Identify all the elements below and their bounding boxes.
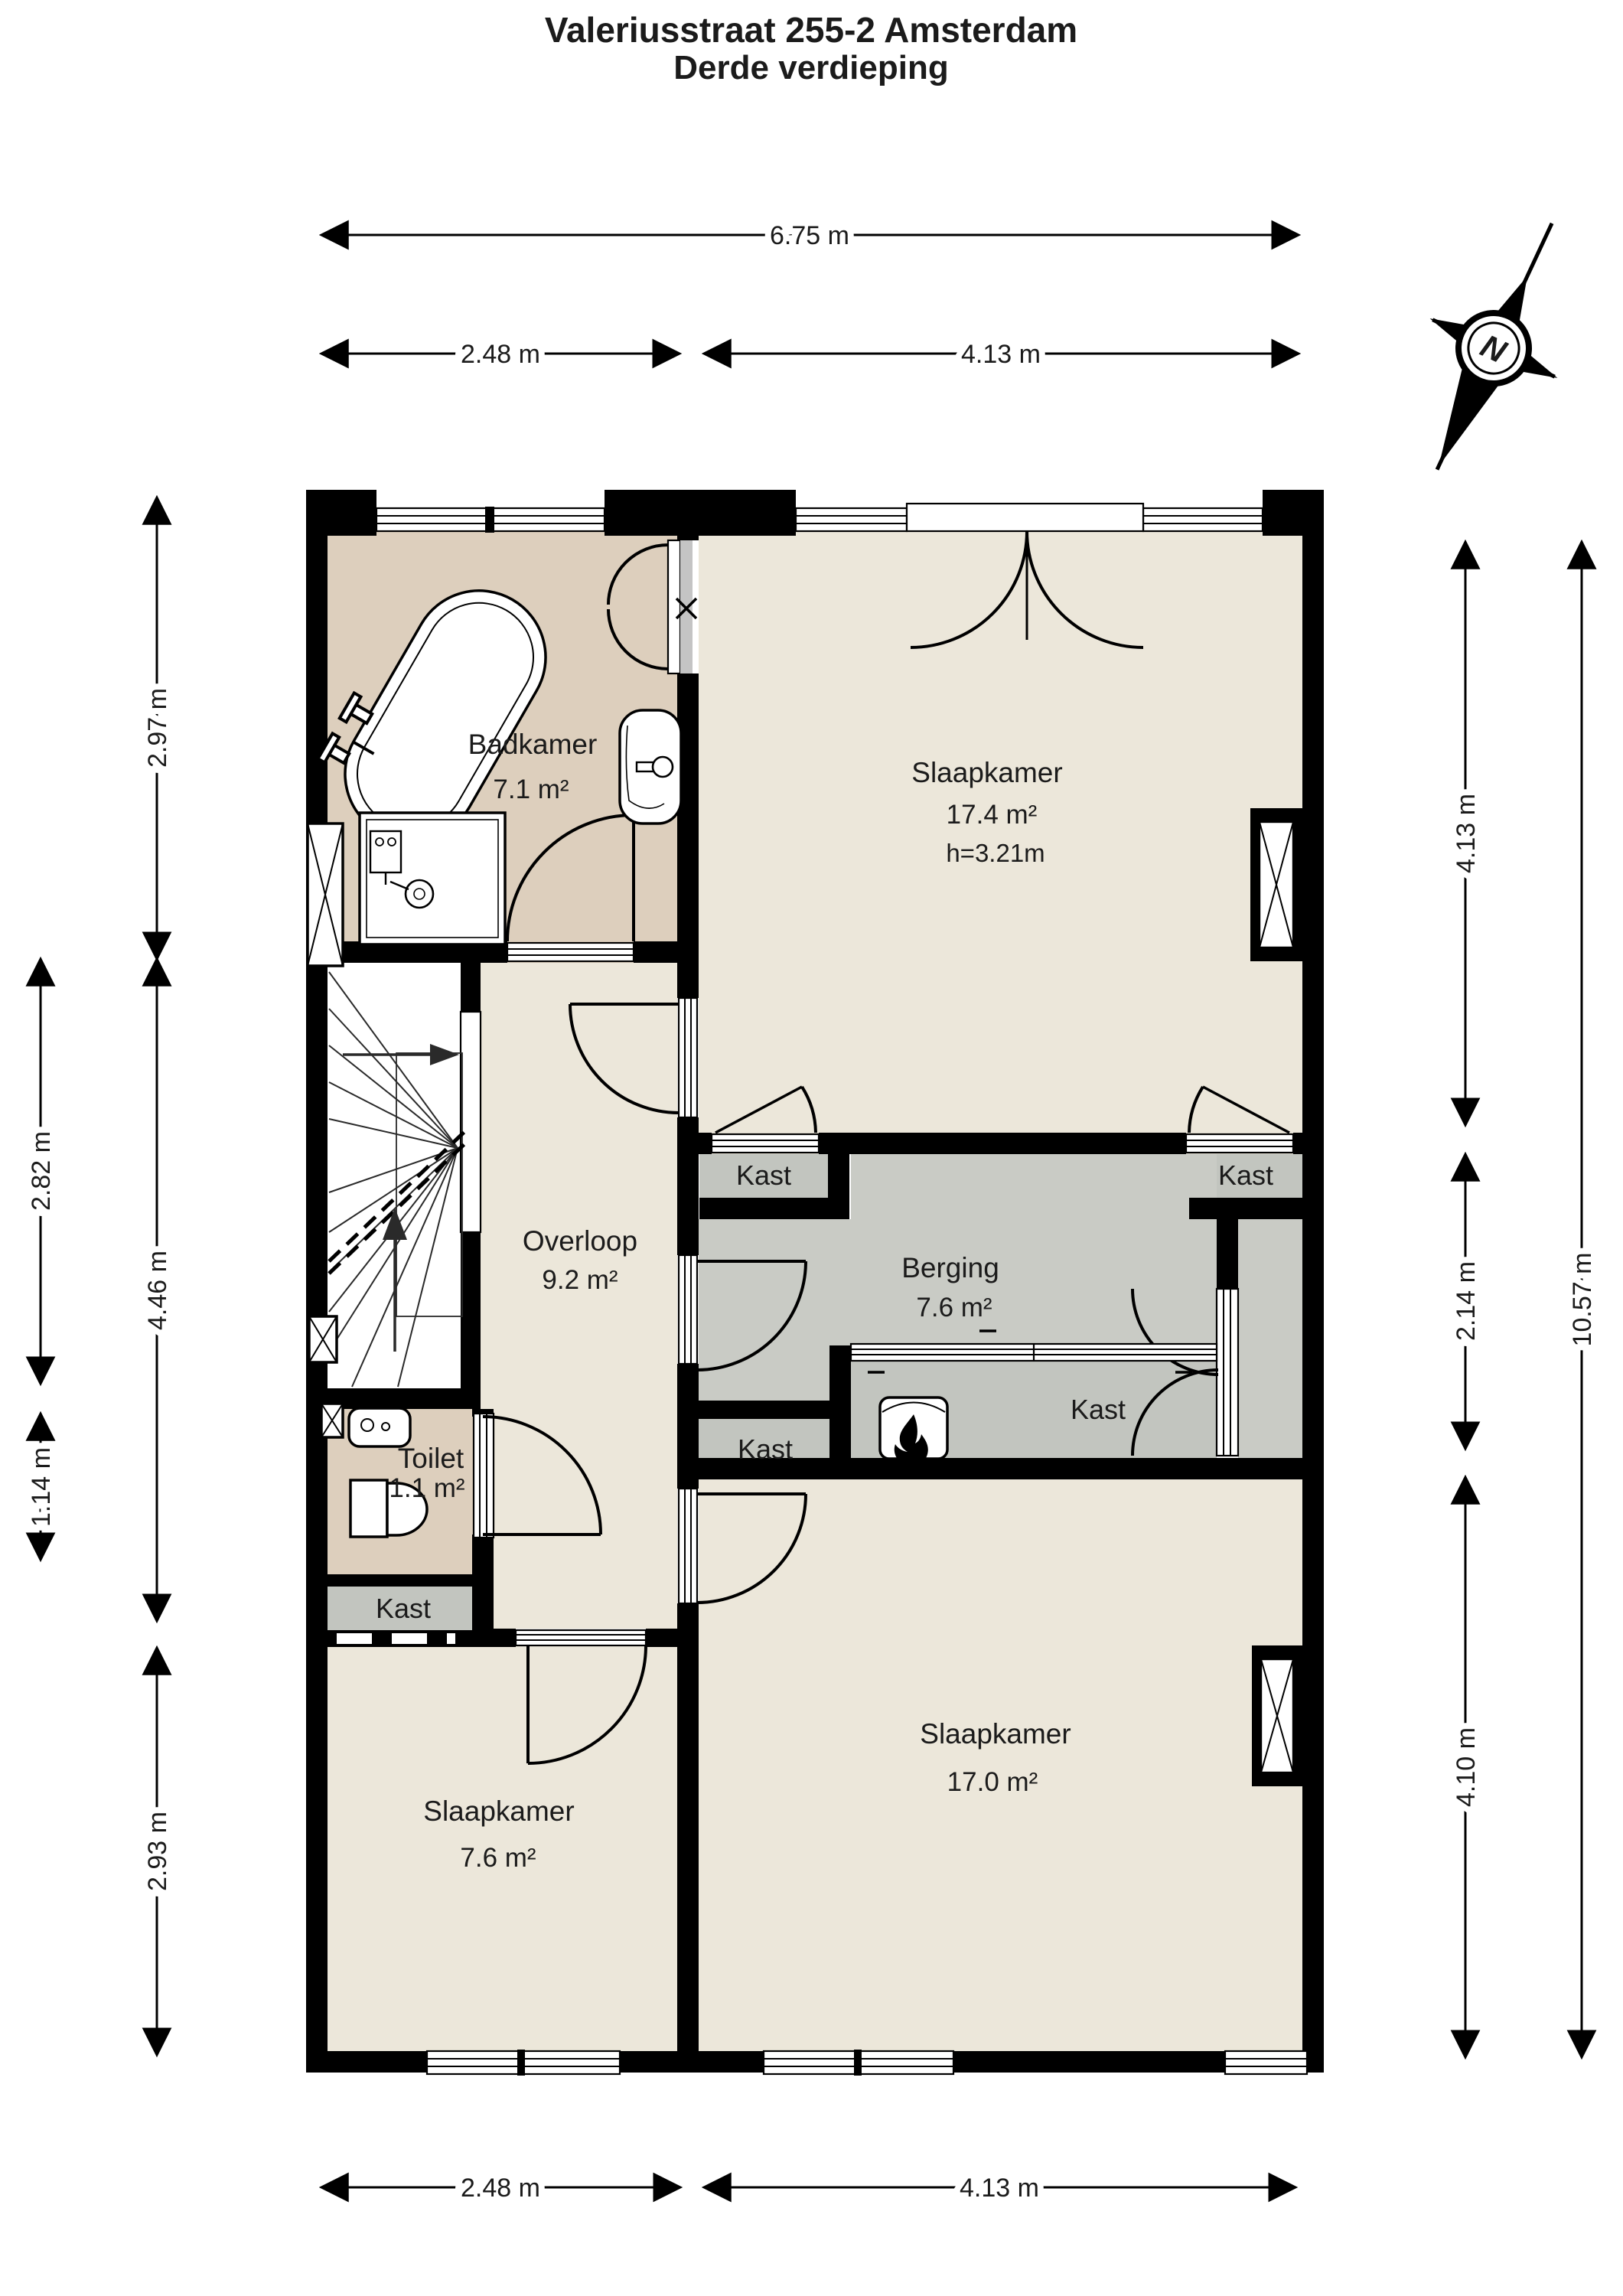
shower-tap-panel [370,831,401,872]
dim-left-inner-bottom: 2.93 m [143,1812,172,1891]
toilet-area: 1.1 m² [389,1473,464,1503]
kast-west-label: Kast [738,1433,793,1465]
wall-overloop-slpk2-a [494,1629,516,1647]
kast-toilet-label: Kast [376,1593,431,1624]
wall-divider-1 [677,490,699,540]
shower-head-icon [406,880,433,908]
wall-kastbox-right-bottom [1189,1198,1302,1219]
chimney-slaapkamer-boven [1250,808,1302,961]
slaapkamer-rechtsonder-floor [699,1479,1302,2051]
slaapkamer-rechtsonder-area: 17.0 m² [947,1767,1038,1797]
wall-divider-2 [677,673,699,998]
wall-left [306,490,328,2073]
berging-floor [851,1154,1217,1345]
dim-left-outer-top: 2.82 m [27,1131,56,1211]
boiler [880,1397,947,1466]
berging-area: 7.6 m² [916,1293,992,1322]
dim-bottom-right: 4.13 m [960,2174,1039,2203]
kast-overloop-label: Kast [736,1159,791,1191]
wall-stairs-b [461,1232,481,1388]
slaapkamer-linksonder-label: Slaapkamer [423,1795,574,1827]
wall-right [1302,490,1324,2073]
slaapkamer-rechtsonder-window-right [1225,2051,1307,2074]
wall-slpk1-bottom-c [1293,1133,1302,1154]
badkamer-sink [620,710,681,823]
dim-top-total: 6.75 m [770,221,849,250]
wall-top-b [605,490,796,536]
dim-left-inner-top: 2.97 m [143,688,172,768]
duct-left-toilet [321,1404,343,1437]
slaapkamer-boven-window-left [796,508,907,531]
floorplan-page: Badkamer 7.1 m² Slaapkamer 17.4 m² h=3.2… [0,0,1623,2296]
chimney-slaapkamer-rechtsonder [1252,1645,1302,1786]
wall-slpk1-bottom-a [699,1133,712,1154]
dim-top-right: 4.13 m [961,340,1041,369]
dim-right-outer: 10.57 m [1568,1253,1597,1347]
shower [360,813,505,944]
overloop-area: 9.2 m² [542,1265,618,1295]
slaapkamer-boven-label: Slaapkamer [911,757,1062,788]
overloop-label: Overloop [523,1225,637,1257]
dim-left-inner-mid: 4.46 m [143,1251,172,1330]
kast-berging-sliding-front [851,1344,1217,1361]
slaapkamer-linksonder-window [427,2050,620,2076]
wall-overloop-slpk2-b [646,1629,677,1647]
wall-bottom-b [620,2051,764,2073]
slaapkamer-boven-floor [699,511,1302,1154]
kast-berging-label: Kast [1071,1394,1126,1425]
wall-bottom-c [953,2051,1225,2073]
plan-title: Valeriusstraat 255-2 Amsterdam Derde ver… [545,10,1077,86]
dim-right-inner-bottom: 4.10 m [1452,1727,1481,1807]
title-line2: Derde verdieping [673,49,948,86]
wall-bottom-a [306,2051,427,2073]
title-line1: Valeriusstraat 255-2 Amsterdam [545,10,1077,50]
duct-left-badkamer [308,823,343,966]
wall-kastbox-left-bottom [699,1198,849,1219]
wall-divider-5 [677,1603,699,2051]
wall-slpk1-bottom-b [819,1133,1186,1154]
slaapkamer-boven-ceiling: h=3.21m [946,839,1045,867]
kast-diep-floor [1238,1219,1302,1458]
compass-north-icon: N [1374,194,1616,500]
wall-berging-east [1217,1219,1238,1289]
wall-stairs-a [461,963,481,1012]
toilet-label: Toilet [398,1443,464,1474]
toilet-sink [349,1408,410,1446]
dim-right-inner-top: 4.13 m [1452,794,1481,873]
dim-top-left: 2.48 m [461,340,540,369]
slaapkamer-rechtsonder-window-left [764,2050,953,2076]
badkamer-label: Badkamer [468,729,598,760]
wall-kast-toilet-side [472,1587,494,1630]
duct-left-overloop [309,1316,337,1362]
wall-kast-west-top [699,1401,829,1419]
slaapkamer-rechtsonder-label: Slaapkamer [920,1718,1071,1750]
slaapkamer-boven-area: 17.4 m² [947,800,1038,830]
berging-west-floor [699,1219,851,1401]
badkamer-window [376,507,605,533]
dim-right-inner-mid: 2.14 m [1452,1261,1481,1341]
faucet-icon [653,757,673,777]
badkamer-area: 7.1 m² [493,775,569,804]
wall-badkamer-bottom-b [634,941,677,963]
dim-bottom-left: 2.48 m [461,2174,540,2203]
wall-bottom-d [1307,2051,1324,2073]
berging-label: Berging [901,1252,999,1283]
wall-toilet-bottom [328,1574,494,1587]
floorplan-drawing: Badkamer 7.1 m² Slaapkamer 17.4 m² h=3.2… [0,0,1623,2296]
wall-divider-3 [677,1117,699,1255]
kast-rechts-label: Kast [1218,1159,1273,1191]
slaapkamer-boven-window-right [1143,508,1263,531]
slaapkamer-linksonder-area: 7.6 m² [460,1843,536,1873]
dim-left-outer-bottom: 1.14 m [27,1447,56,1527]
